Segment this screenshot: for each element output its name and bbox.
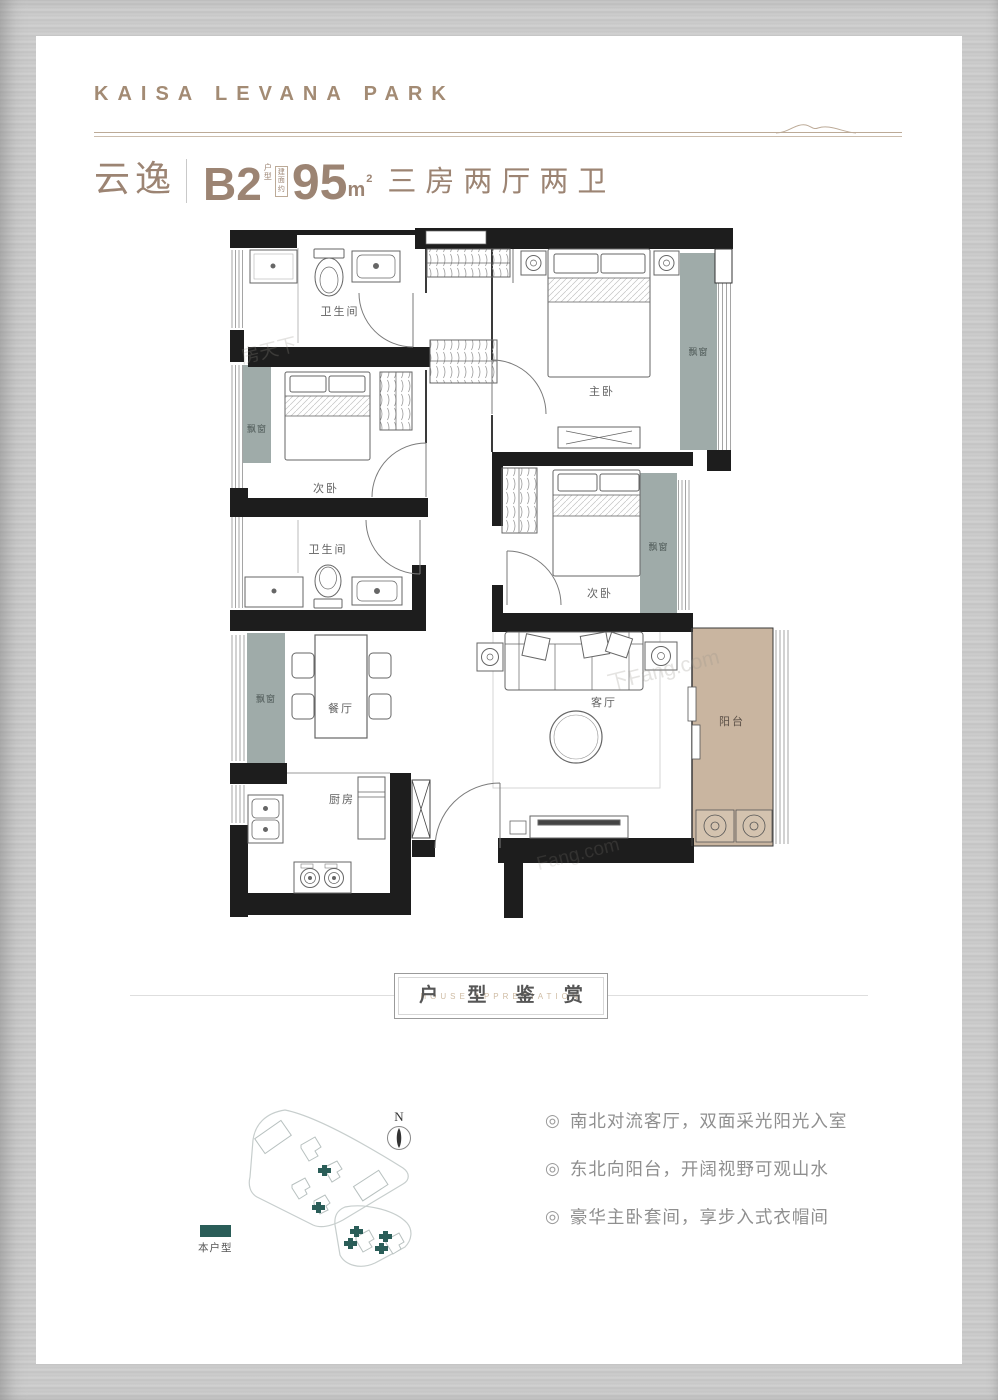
brand-title: KAISA LEVANA PARK — [94, 83, 455, 106]
top-window-notch — [426, 231, 486, 244]
label-master: 主卧 — [589, 385, 615, 398]
bullseye-bullet-icon: ◎ — [545, 1208, 560, 1225]
bullseye-bullet-icon: ◎ — [545, 1112, 560, 1129]
feature-text: 南北对流客厅，双面采光阳光入室 — [570, 1108, 848, 1133]
north-label: N — [394, 1109, 404, 1124]
label-kitchen: 厨房 — [329, 793, 355, 806]
label-bed3: 次卧 — [587, 586, 613, 600]
bed2-furniture — [285, 372, 370, 460]
feature-text: 东北向阳台，开阔视野可观山水 — [570, 1156, 829, 1181]
wardrobes — [380, 249, 537, 533]
label-bay-2: 飘窗 — [688, 346, 708, 357]
layout-description: 三房两厅两卫 — [387, 158, 615, 207]
dining-furniture — [292, 635, 391, 738]
feature-item: ◎ 东北向阳台，开阔视野可观山水 — [545, 1156, 847, 1180]
area-note: 建面约 — [275, 166, 288, 197]
label-bed2: 次卧 — [313, 481, 339, 495]
label-bath2: 卫生间 — [309, 542, 348, 556]
feature-list: ◎ 南北对流客厅，双面采光阳光入室 ◎ 东北向阳台，开阔视野可观山水 ◎ 豪华主… — [545, 1108, 847, 1252]
label-dining: 餐厅 — [328, 701, 354, 715]
unit-title-row: 云逸 B2 户型 建面约 95 m2 三房两厅两卫 — [94, 150, 615, 207]
area-value: 95 — [292, 157, 348, 207]
label-bath1: 卫生间 — [321, 304, 360, 318]
label-bay-4: 飘窗 — [256, 693, 276, 704]
feature-text: 豪华主卧套间，享步入式衣帽间 — [570, 1204, 829, 1229]
label-balcony: 阳台 — [719, 714, 745, 728]
unit-type: B2 — [203, 161, 262, 207]
bathroom2-fixtures — [245, 565, 402, 608]
bed3-furniture — [553, 470, 640, 576]
area-unit: m2 — [347, 179, 371, 207]
label-bay-3: 飘窗 — [648, 541, 668, 552]
legend-label: 本户型 — [198, 1241, 233, 1254]
area-exponent: 2 — [366, 173, 372, 185]
site-buildings-gray — [255, 1120, 404, 1254]
bullseye-bullet-icon: ◎ — [545, 1160, 560, 1177]
master-furniture — [521, 249, 679, 448]
unit-name: 云逸 — [94, 150, 176, 207]
label-living: 客厅 — [591, 695, 617, 709]
label-bay-1: 飘窗 — [247, 423, 267, 434]
banner-title: 户 型 鉴 赏 — [395, 974, 607, 1018]
site-plan: N 本户型 — [170, 1085, 460, 1285]
corner-pillar — [715, 249, 732, 283]
legend-swatch — [200, 1225, 231, 1237]
section-banner: HOUSE APPRECIATION 户 型 鉴 赏 — [394, 973, 608, 1019]
title-divider — [186, 159, 187, 203]
mountain-squiggle-decoration — [776, 118, 856, 138]
north-compass: N — [388, 1109, 411, 1150]
bathroom1-fixtures — [250, 249, 400, 296]
feature-item: ◎ 豪华主卧套间，享步入式衣帽间 — [545, 1204, 847, 1228]
floor-plan: 卫生间 主卧 次卧 卫生间 次卧 餐厅 客厅 厨房 阳台 飘窗 飘窗 飘窗 飘窗 — [230, 225, 800, 920]
unit-type-note: 户型 — [264, 163, 272, 181]
flyer-page: KAISA LEVANA PARK 云逸 B2 户型 建面约 95 m2 三房两… — [36, 36, 962, 1364]
feature-item: ◎ 南北对流客厅，双面采光阳光入室 — [545, 1108, 847, 1132]
